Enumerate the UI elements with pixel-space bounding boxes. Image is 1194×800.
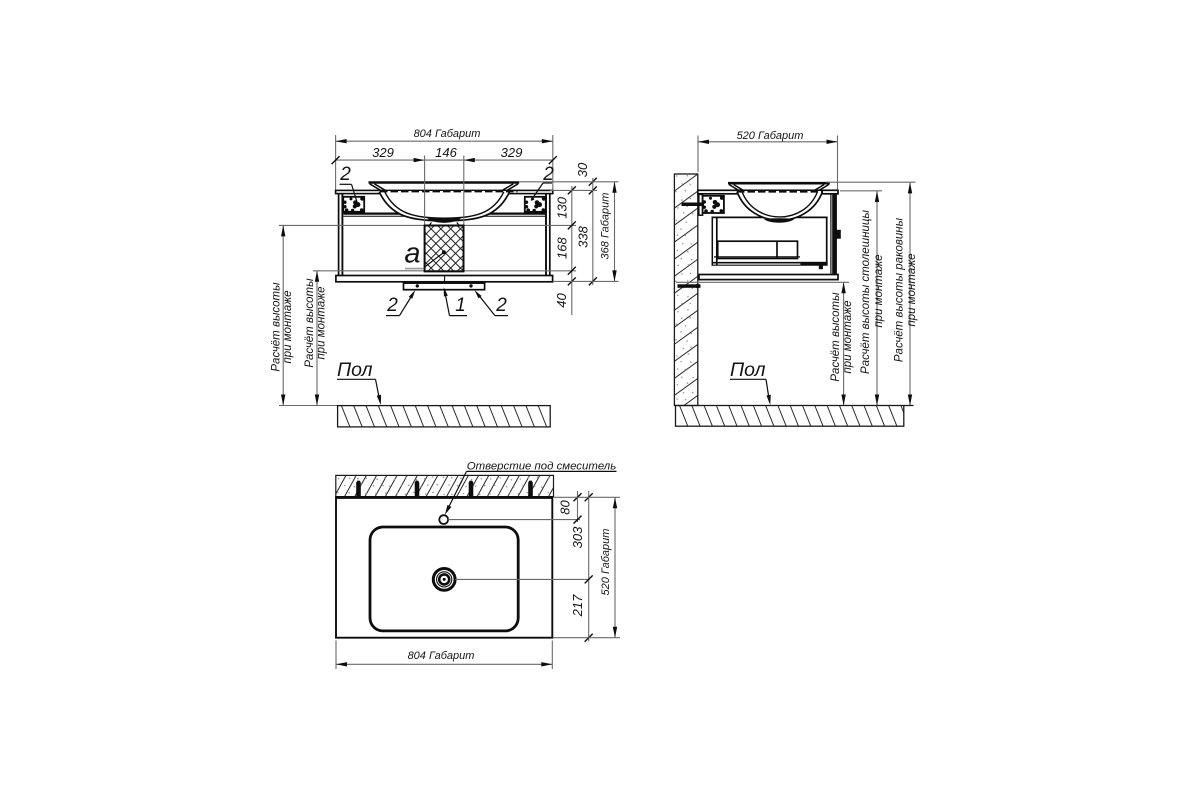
svg-text:2: 2 (386, 295, 398, 316)
svg-text:520 Габарит: 520 Габарит (600, 529, 612, 596)
svg-text:368 Габарит: 368 Габарит (600, 193, 612, 260)
svg-text:при монтаже: при монтаже (316, 286, 328, 359)
svg-text:1: 1 (455, 295, 466, 316)
svg-text:a: a (404, 238, 420, 270)
svg-text:при монтаже: при монтаже (906, 253, 918, 326)
svg-text:520 Габарит: 520 Габарит (737, 130, 804, 142)
svg-text:217: 217 (570, 594, 585, 617)
svg-text:Отверстие под смеситель: Отверстие под смеситель (467, 460, 616, 472)
svg-text:146: 146 (435, 145, 457, 160)
svg-text:30: 30 (575, 162, 590, 177)
svg-text:Расчёт высоты: Расчёт высоты (270, 282, 282, 372)
svg-text:Пол: Пол (337, 359, 373, 381)
svg-text:168: 168 (555, 236, 570, 258)
svg-text:804 Габарит: 804 Габарит (408, 650, 475, 662)
svg-text:80: 80 (558, 500, 573, 515)
svg-text:329: 329 (501, 145, 523, 160)
svg-text:804 Габарит: 804 Габарит (414, 128, 481, 140)
svg-text:Расчёт высоты: Расчёт высоты (830, 292, 842, 382)
svg-text:Расчёт высоты раковины: Расчёт высоты раковины (894, 217, 906, 362)
svg-text:Расчёт высоты столешницы: Расчёт высоты столешницы (860, 209, 872, 373)
svg-text:338: 338 (576, 225, 591, 247)
svg-text:Пол: Пол (730, 359, 766, 381)
svg-text:при монтаже: при монтаже (842, 300, 854, 373)
svg-text:при монтаже: при монтаже (873, 254, 885, 327)
svg-text:329: 329 (372, 145, 394, 160)
svg-text:при монтаже: при монтаже (282, 290, 294, 363)
svg-text:303: 303 (570, 526, 585, 548)
svg-text:2: 2 (339, 164, 351, 185)
svg-text:40: 40 (554, 293, 569, 308)
svg-text:130: 130 (555, 196, 570, 218)
svg-text:Расчёт высоты: Расчёт высоты (304, 278, 316, 368)
svg-text:2: 2 (495, 295, 507, 316)
